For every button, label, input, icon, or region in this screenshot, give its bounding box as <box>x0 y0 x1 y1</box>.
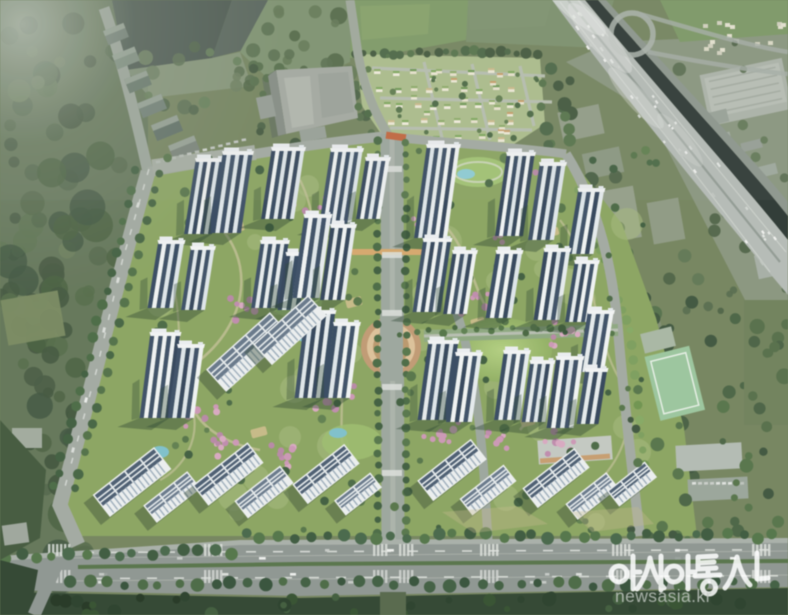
svg-text:newsasia.kr: newsasia.kr <box>615 586 712 606</box>
